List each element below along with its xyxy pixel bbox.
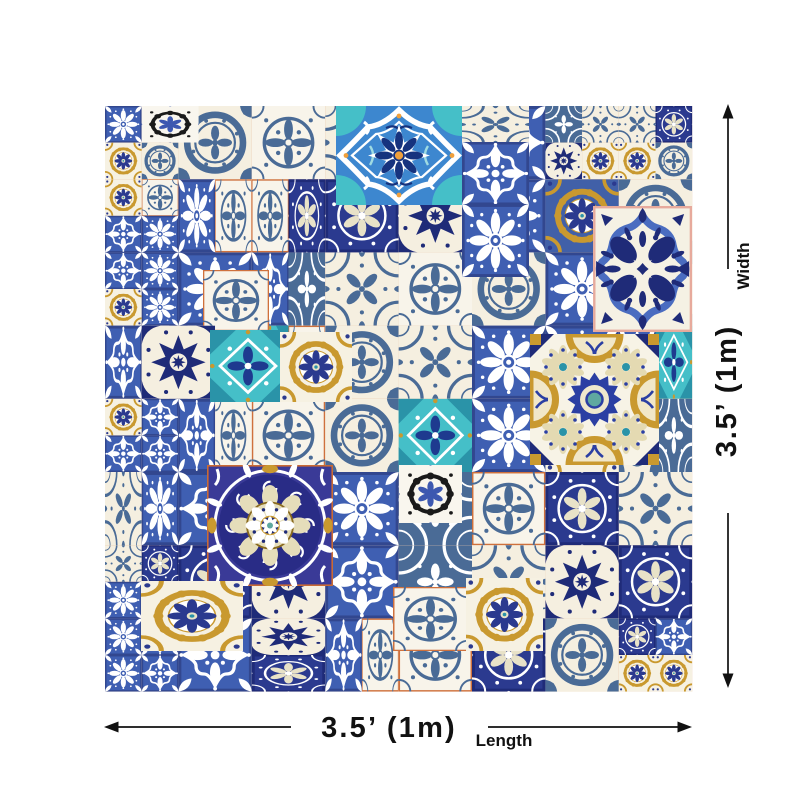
svg-text:3.5’ (1m): 3.5’ (1m)	[321, 712, 457, 744]
svg-text:3.5’ (1m): 3.5’ (1m)	[711, 325, 743, 457]
svg-text:Width: Width	[734, 242, 753, 289]
svg-text:Length: Length	[476, 731, 533, 750]
